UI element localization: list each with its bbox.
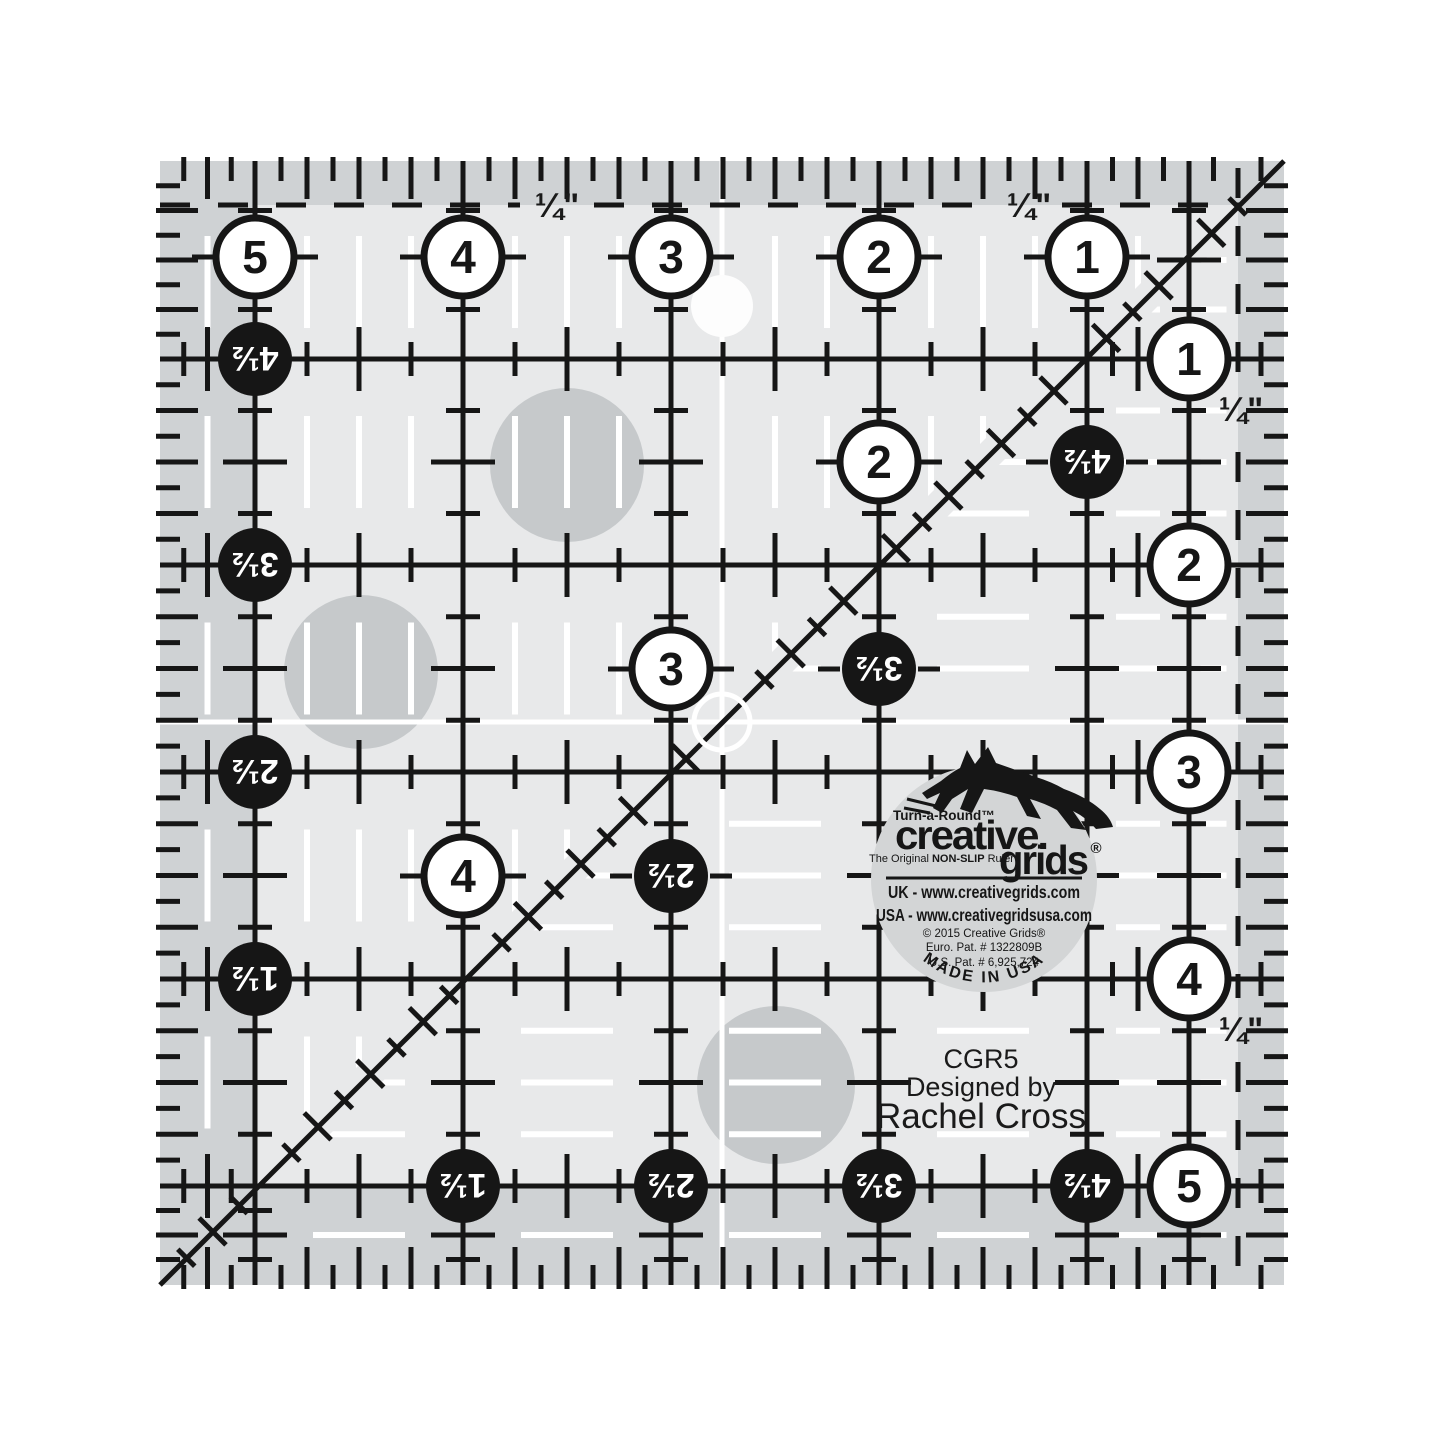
measure-number: 4 [1176, 953, 1202, 1005]
measure-number-inverted: 2½ [231, 752, 278, 790]
quarter-label-top-right: ¼" [1007, 187, 1051, 225]
white-circle-right-2: 2 [1150, 526, 1228, 604]
quarter-label-right-upper: ¼" [1219, 391, 1263, 429]
measure-number-inverted: 1½ [439, 1166, 486, 1204]
logo-patent-euro: Euro. Pat. # 1322809B [926, 942, 1043, 954]
measure-number-inverted: 4½ [1063, 442, 1110, 480]
black-circle-left-3½: 3½ [218, 528, 292, 602]
logo-subtitle: The Original NON-SLIP Ruler [869, 853, 1014, 865]
measure-number: 1 [1176, 333, 1202, 385]
black-circle-bottom-4½: 4½ [1050, 1149, 1124, 1223]
measure-number-inverted: 1½ [231, 959, 278, 997]
measure-number-inverted: 4½ [1063, 1166, 1110, 1204]
white-circle-right-3: 3 [1150, 733, 1228, 811]
quilting-ruler-image: 54321123452344½3½2½1½1½2½3½4½4½3½2½ Turn… [0, 0, 1445, 1445]
measure-number: 2 [866, 231, 892, 283]
quarter-label-right-lower: ¼" [1219, 1011, 1263, 1049]
measure-number: 2 [1176, 539, 1202, 591]
measure-number: 1 [1074, 231, 1100, 283]
quarter-label-top-left: ¼" [535, 187, 579, 225]
logo-subtitle-bold: NON-SLIP [932, 853, 985, 865]
measure-number-inverted: 3½ [855, 649, 902, 687]
model-number: CGR5 [943, 1044, 1018, 1074]
measure-number-inverted: 3½ [231, 545, 278, 583]
measure-number: 5 [242, 231, 268, 283]
logo-copyright: © 2015 Creative Grids® [923, 928, 1046, 940]
measure-number-inverted: 3½ [855, 1166, 902, 1204]
measure-number: 3 [1176, 746, 1202, 798]
measure-number: 2 [866, 436, 892, 488]
measure-number: 4 [450, 231, 476, 283]
measure-number: 3 [658, 231, 684, 283]
white-circle-right-5: 5 [1150, 1147, 1228, 1225]
measure-number-inverted: 2½ [647, 1166, 694, 1204]
measure-number-inverted: 2½ [647, 856, 694, 894]
measure-number-inverted: 4½ [231, 339, 278, 377]
white-circle-right-1: 1 [1150, 320, 1228, 398]
logo-url-uk: UK - www.creativegrids.com [888, 882, 1080, 902]
black-circle-bottom-1½: 1½ [426, 1149, 500, 1223]
black-circle-bottom-3½: 3½ [842, 1149, 916, 1223]
measure-number: 4 [450, 850, 476, 902]
product-photo-stage: 54321123452344½3½2½1½1½2½3½4½4½3½2½ Turn… [0, 0, 1445, 1445]
designer-name: Rachel Cross [876, 1097, 1086, 1136]
logo-subtitle-suffix: Ruler [985, 853, 1015, 865]
black-circle-left-2½: 2½ [218, 735, 292, 809]
white-circle-right-4: 4 [1150, 940, 1228, 1018]
logo-url-usa: USA - www.creativegridsusa.com [876, 905, 1092, 925]
measure-number: 5 [1176, 1160, 1202, 1212]
logo-registered-mark: ® [1090, 840, 1101, 857]
measure-number: 3 [658, 643, 684, 695]
black-circle-left-4½: 4½ [218, 322, 292, 396]
black-circle-left-1½: 1½ [218, 942, 292, 1016]
black-circle-bottom-2½: 2½ [634, 1149, 708, 1223]
logo-subtitle-prefix: The Original [869, 853, 932, 865]
